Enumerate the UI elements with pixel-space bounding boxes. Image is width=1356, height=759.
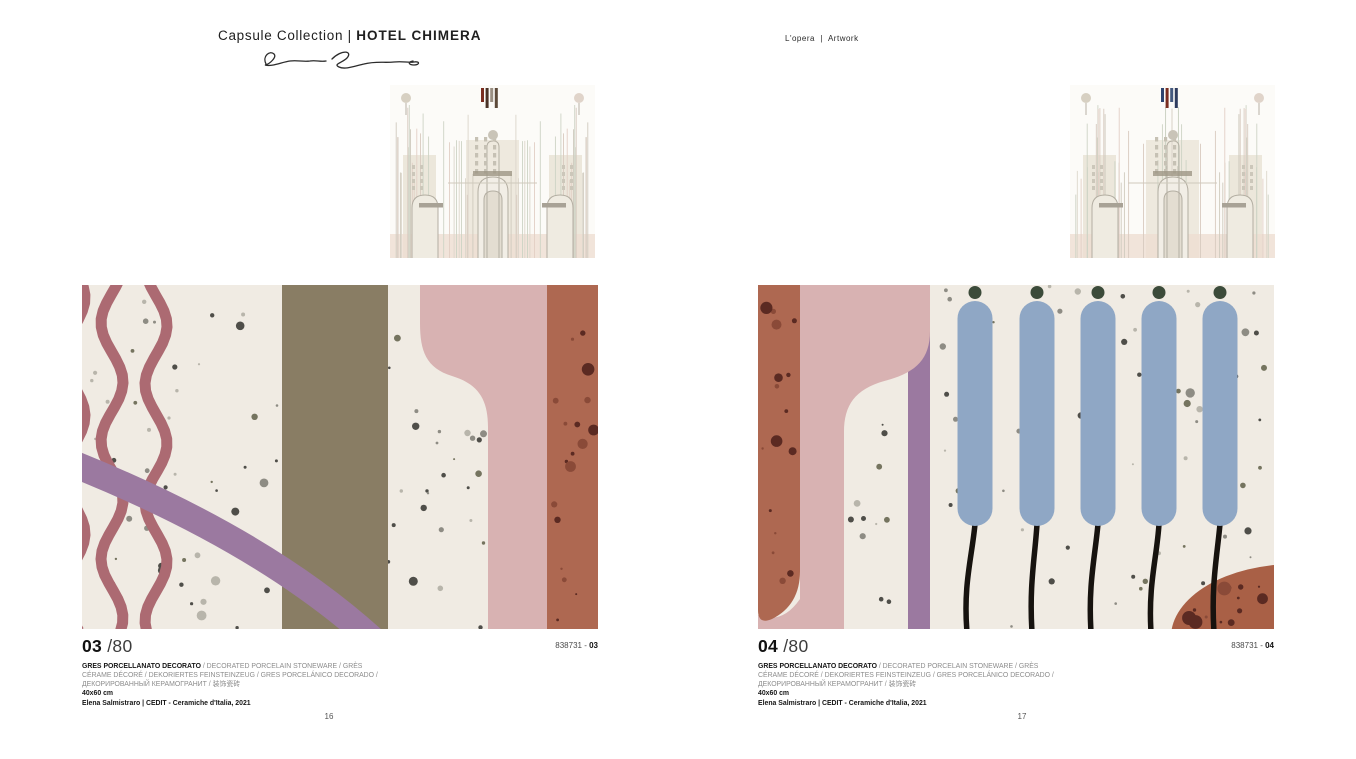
product-code: 838731 - 04 (1126, 641, 1274, 650)
material-name-rest: / DECORATED PORCELAIN STONEWARE / GRÈS (201, 663, 362, 670)
tile-index-total: /80 (783, 636, 808, 656)
section-label: L'opera | Artwork (785, 34, 859, 43)
artwork-thumbnail-right (1070, 85, 1275, 258)
material-name-bold: GRES PORCELLANATO DECORATO (758, 663, 877, 670)
artist-signature (256, 46, 431, 76)
catalog-spread: Capsule Collection | HOTEL CHIMERA L'ope… (0, 0, 1356, 759)
material-description-line3: ДЕКОРИРОВАННЫЙ КЕРАМОГРАНИТ / 装饰瓷砖 (758, 680, 1038, 689)
page-title: Capsule Collection | HOTEL CHIMERA (218, 28, 482, 43)
page-number-right: 17 (1008, 712, 1036, 721)
designer-credit: Elena Salmistraro | CEDIT - Ceramiche d'… (758, 700, 927, 707)
tile-index-number: 04 (758, 636, 778, 656)
product-code-number: 03 (589, 641, 598, 650)
tile-artwork-04 (758, 285, 1274, 629)
tile-index-number: 03 (82, 636, 102, 656)
material-description-line2: CÉRAME DÉCORÉ / DEKORIERTES FEINSTEINZEU… (758, 671, 1038, 680)
product-code: 838731 - 03 (450, 641, 598, 650)
tile-size: 40x60 cm (758, 690, 789, 697)
product-code-prefix: 838731 - (1231, 641, 1265, 650)
tile-size: 40x60 cm (82, 690, 113, 697)
tile-index-total: /80 (107, 636, 132, 656)
material-description: GRES PORCELLANATO DECORATO / DECORATED P… (758, 662, 1038, 689)
material-description-line3: ДЕКОРИРОВАННЫЙ КЕРАМОГРАНИТ / 装饰瓷砖 (82, 680, 362, 689)
product-code-number: 04 (1265, 641, 1274, 650)
material-description: GRES PORCELLANATO DECORATO / DECORATED P… (82, 662, 362, 689)
tile-index: 03 /80 (82, 636, 132, 657)
product-code-prefix: 838731 - (555, 641, 589, 650)
tile-artwork-03 (82, 285, 598, 629)
tile-index: 04 /80 (758, 636, 808, 657)
page-number-left: 16 (315, 712, 343, 721)
designer-credit: Elena Salmistraro | CEDIT - Ceramiche d'… (82, 700, 251, 707)
artwork-thumbnail-left (390, 85, 595, 258)
collection-name: Capsule Collection | (218, 28, 356, 43)
material-name-bold: GRES PORCELLANATO DECORATO (82, 663, 201, 670)
collection-name-bold: HOTEL CHIMERA (356, 28, 481, 43)
material-name-rest: / DECORATED PORCELAIN STONEWARE / GRÈS (877, 663, 1038, 670)
material-description-line2: CÉRAME DÉCORÉ / DEKORIERTES FEINSTEINZEU… (82, 671, 362, 680)
